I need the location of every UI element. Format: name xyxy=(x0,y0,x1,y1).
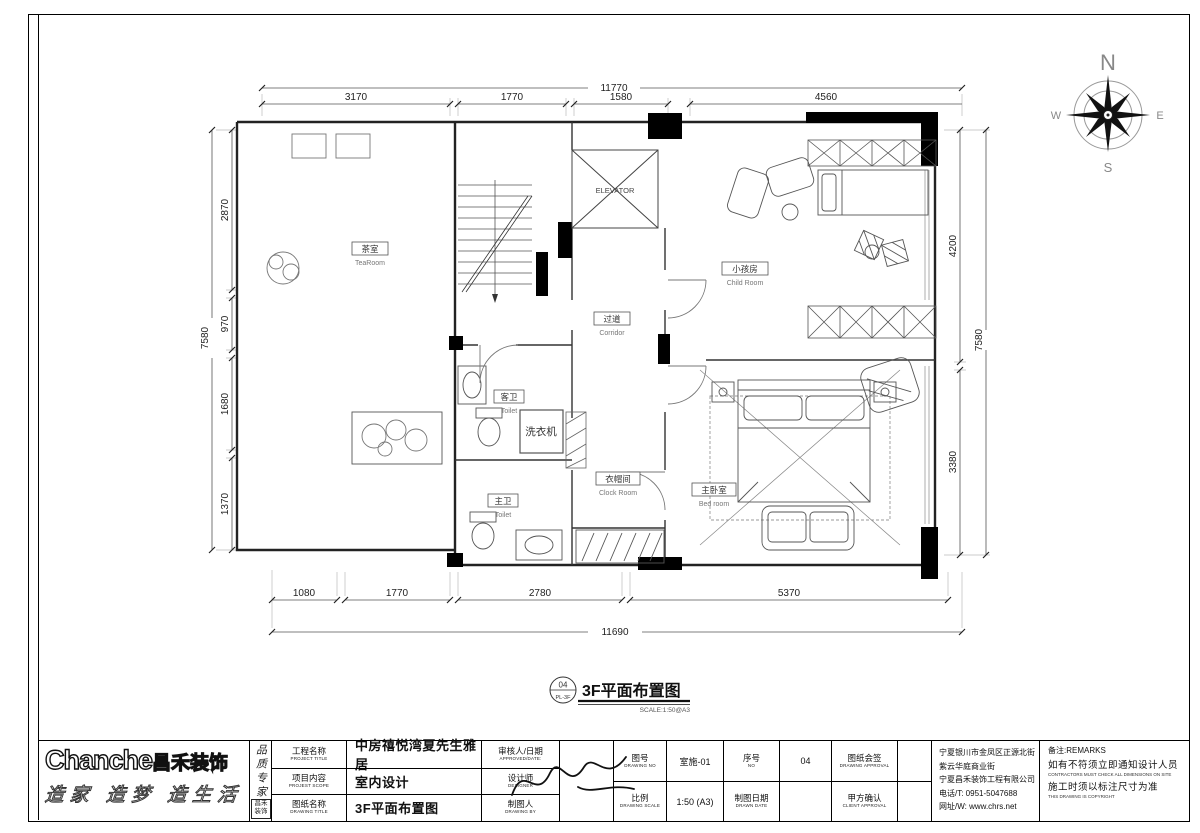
drawing-no-value: 室施-01 xyxy=(679,755,710,768)
corridor-label-en: Corridor xyxy=(599,330,625,337)
remarks-line-2-en: THIS DRAWING IS COPYRIGHT xyxy=(1048,793,1189,800)
dim-top-seg-4: 4560 xyxy=(815,92,838,103)
company-info: 宁夏银川市金凤区正源北街 紫云华庭商业街 宁夏昌禾装饰工程有限公司 电话/T: … xyxy=(931,741,1039,821)
values-col-1: 中房禧悦湾夏先生雅居 室内设计 3F平面布置图 xyxy=(346,741,481,821)
empty-col xyxy=(897,741,931,821)
corridor-label-cn: 过道 xyxy=(603,314,621,324)
drawing-title-label-en: DRAWING TITLE xyxy=(290,809,328,815)
company-address-2: 紫云华庭商业街 xyxy=(939,760,1039,774)
remarks-line-1-en: CONTRACTORS MUST CHECK ALL DIMENSIONS ON… xyxy=(1048,771,1189,778)
dim-bottom-seg-4: 5370 xyxy=(778,588,801,599)
logo-en-text: Chanche xyxy=(45,745,152,775)
dim-left-seg-2: 970 xyxy=(220,315,231,332)
vertical-tagline: 品质专家 xyxy=(253,744,269,800)
client-label-en: CLIENT APPROVAL xyxy=(843,803,887,809)
compass-w: W xyxy=(1051,110,1062,122)
dim-left-seg-1: 2870 xyxy=(220,198,231,221)
child-room-label-en: Child Room xyxy=(727,280,764,287)
child-room-label-cn: 小孩房 xyxy=(732,264,758,274)
dim-bottom-seg-3: 2780 xyxy=(529,588,552,599)
serial-label-en: NO xyxy=(748,763,755,769)
bedroom-label-en: Bed room xyxy=(699,501,730,508)
designer-signature xyxy=(494,743,654,819)
wardrobe-top xyxy=(808,140,936,166)
compass-e: E xyxy=(1156,110,1163,122)
sign-label-cn: 图纸会签 xyxy=(847,754,881,763)
plan-title-scale: SCALE:1:50@A3 xyxy=(640,707,691,714)
remarks: 备注:REMARKS 如有不符须立即通知设计人员 CONTRACTORS MUS… xyxy=(1039,741,1189,821)
dim-left-seg-3: 1680 xyxy=(220,392,231,415)
labels-col-4: 序号NO 制图日期DRAWN DATE xyxy=(723,741,779,821)
title-block: Chanche昌禾装饰 造家 造梦 造生活 品质专家 昌禾装饰 工程名称PROJ… xyxy=(39,740,1189,821)
cloak-room-label-cn: 衣帽间 xyxy=(605,474,631,484)
dim-bottom-seg-1: 1080 xyxy=(293,588,316,599)
company-address-1: 宁夏银川市金凤区正源北街 xyxy=(939,746,1039,760)
company-name: 宁夏昌禾装饰工程有限公司 xyxy=(939,773,1039,787)
plan-title-text: 3F平面布置图 xyxy=(582,681,681,700)
drawing-title-value: 3F平面布置图 xyxy=(355,798,439,817)
company-seal: 昌禾装饰 xyxy=(251,799,271,819)
compass-rose: N W E S xyxy=(1051,50,1164,175)
master-toilet-label-cn: 主卫 xyxy=(494,496,512,506)
labels-col-5: 图纸会签DRAWING APPROVAL 甲方确认CLIENT APPROVAL xyxy=(831,741,897,821)
project-title-label-cn: 工程名称 xyxy=(292,747,326,756)
scope-label-en: PROJEST SCOPE xyxy=(289,783,329,789)
values-col-3: 室施-01 1:50 (A3) xyxy=(666,741,723,821)
dim-bottom-total: 11690 xyxy=(601,627,629,638)
plan-title-code: PL-3F xyxy=(556,695,572,701)
dim-left-total: 7580 xyxy=(200,326,211,349)
floor-plan-drawing: 11770 3170 1770 1580 4560 1080 1770 2780… xyxy=(0,0,1200,740)
window-lines xyxy=(925,170,929,524)
master-bedroom-furniture xyxy=(700,355,922,550)
scale-value: 1:50 (A3) xyxy=(676,797,713,807)
dim-right-total: 7580 xyxy=(974,328,985,351)
compass-s: S xyxy=(1104,160,1113,175)
terrace-furniture xyxy=(267,134,442,464)
wardrobe-child-room xyxy=(808,306,936,338)
scope-label-cn: 项目内容 xyxy=(292,774,326,783)
plan-title: 04 PL-3F 3F平面布置图 SCALE:1:50@A3 xyxy=(550,677,690,714)
serial-label-cn: 序号 xyxy=(743,754,760,763)
dim-top-seg-2: 1770 xyxy=(501,92,524,103)
witness-lines xyxy=(216,94,990,628)
company-slogan: 造家 造梦 造生活 xyxy=(44,780,249,807)
remarks-line-2: 施工时须以标注尺寸为准 xyxy=(1048,782,1189,793)
drawing-title-label-cn: 图纸名称 xyxy=(292,800,326,809)
dim-right-seg-1: 4200 xyxy=(948,234,959,257)
cloak-room-label-en: Clock Room xyxy=(599,490,637,497)
company-website: 网址/W: www.chrs.net xyxy=(939,800,1039,814)
stairs xyxy=(458,180,532,303)
date-label-cn: 制图日期 xyxy=(734,794,768,803)
dim-right-seg-2: 3380 xyxy=(948,450,959,473)
tearoom-label-en: TeaRoom xyxy=(355,260,385,267)
sign-label-en: DRAWING APPROVAL xyxy=(840,763,890,769)
project-title-label-en: PROJECT TITLE xyxy=(291,756,328,762)
values-col-4: 04 xyxy=(779,741,831,821)
interior-walls xyxy=(455,122,935,565)
vertical-tagline-cell: 品质专家 昌禾装饰 xyxy=(249,741,271,821)
guest-toilet-label-en: Toilet xyxy=(501,408,517,415)
child-room-furniture xyxy=(726,156,928,267)
dimensions-left xyxy=(209,127,235,553)
cloak-closet xyxy=(576,530,664,563)
remarks-line-1: 如有不符须立即通知设计人员 xyxy=(1048,760,1189,771)
master-bathroom-fixtures xyxy=(470,512,562,560)
dim-top-seg-3: 1580 xyxy=(610,92,633,103)
master-toilet-label-en: Toilet xyxy=(495,512,511,519)
drawing-sheet: 11770 3170 1770 1580 4560 1080 1770 2780… xyxy=(0,0,1200,833)
remarks-label: 备注:REMARKS xyxy=(1048,745,1189,756)
tearoom-label-cn: 茶室 xyxy=(361,244,379,254)
client-label-cn: 甲方确认 xyxy=(847,794,881,803)
company-phone: 电话/T: 0951-5047688 xyxy=(939,787,1039,801)
logo-cn-text: 昌禾装饰 xyxy=(152,753,228,774)
dim-left-seg-4: 1370 xyxy=(220,492,231,515)
plan-title-number: 04 xyxy=(559,681,568,690)
scope-value: 室内设计 xyxy=(355,772,409,791)
labels-col-1: 工程名称PROJECT TITLE 项目内容PROJEST SCOPE 图纸名称… xyxy=(271,741,346,821)
dim-top-seg-1: 3170 xyxy=(345,92,368,103)
company-logo: Chanche昌禾装饰 造家 造梦 造生活 xyxy=(39,741,249,821)
elevator-label: ELEVATOR xyxy=(596,186,635,195)
date-label-en: DRAWN DATE xyxy=(736,803,768,809)
washer-label: 洗衣机 xyxy=(525,425,557,438)
bedroom-label-cn: 主卧室 xyxy=(701,485,727,495)
guest-toilet-label-cn: 客卫 xyxy=(500,392,518,402)
serial-value: 04 xyxy=(800,756,810,766)
dim-bottom-seg-2: 1770 xyxy=(386,588,409,599)
outer-walls xyxy=(237,122,935,565)
compass-n: N xyxy=(1100,50,1116,75)
